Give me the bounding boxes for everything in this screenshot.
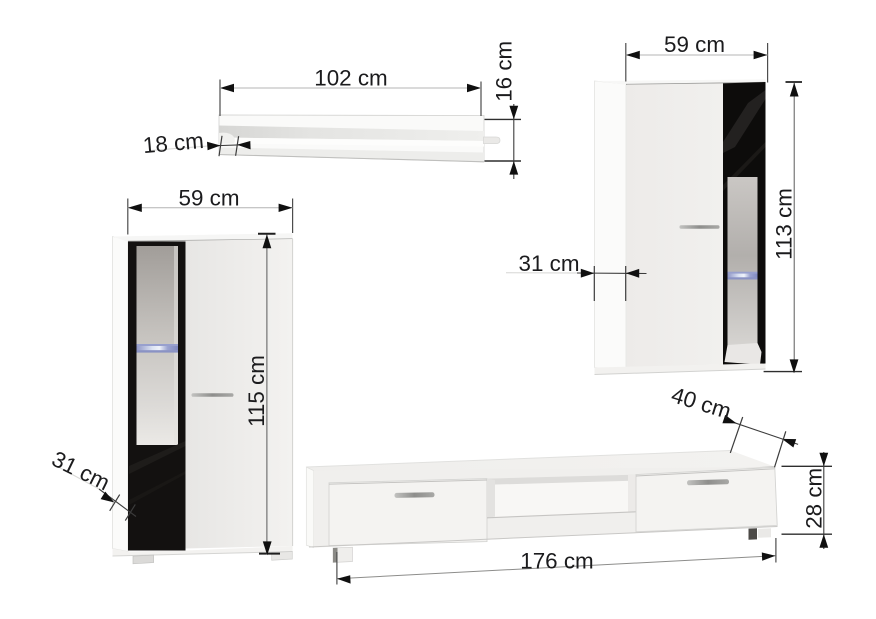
svg-text:115 cm: 115 cm bbox=[244, 355, 269, 427]
svg-text:102 cm: 102 cm bbox=[314, 66, 387, 91]
svg-text:31 cm: 31 cm bbox=[519, 251, 580, 276]
svg-text:59 cm: 59 cm bbox=[664, 32, 725, 57]
svg-text:176 cm: 176 cm bbox=[520, 548, 593, 573]
svg-text:18 cm: 18 cm bbox=[142, 128, 205, 158]
svg-text:59 cm: 59 cm bbox=[179, 185, 240, 210]
svg-text:113 cm: 113 cm bbox=[772, 188, 797, 260]
svg-text:16 cm: 16 cm bbox=[492, 41, 517, 102]
svg-text:28 cm: 28 cm bbox=[802, 468, 827, 529]
